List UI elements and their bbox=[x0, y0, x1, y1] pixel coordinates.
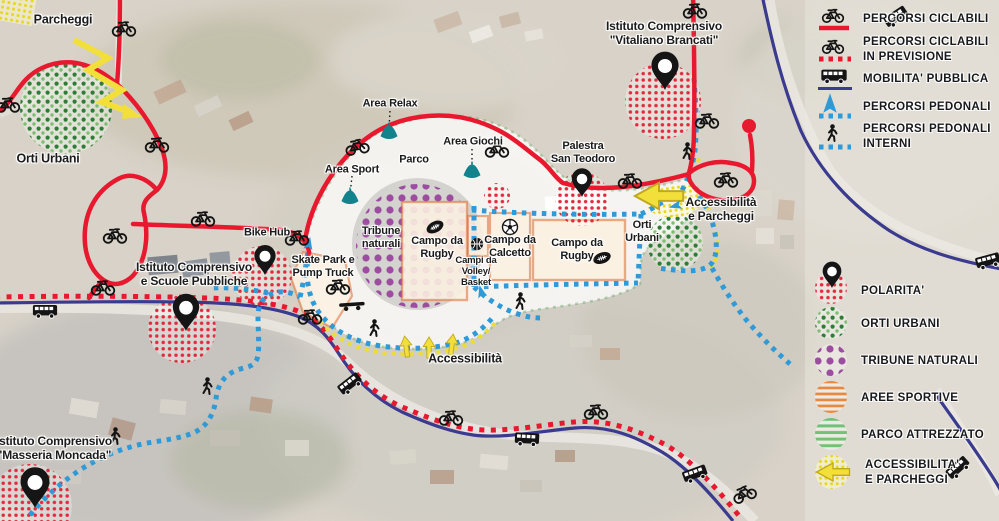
label-area-giochi: Area Giochi bbox=[443, 136, 503, 149]
orti-legend-icon bbox=[812, 306, 852, 342]
label-accessibilita: Accessibilità bbox=[428, 352, 502, 367]
label-parco: Parco bbox=[399, 154, 429, 167]
planned-cycle-legend-icon bbox=[816, 36, 854, 64]
legend-item-orti-urbani: ORTI URBANI bbox=[812, 306, 940, 342]
label-istituto-moncada: Istituto Comprensivo"Masseria Moncada" bbox=[0, 434, 112, 462]
legend-item-ciclabili-previsione: PERCORSI CICLABILIIN PREVISIONE bbox=[816, 35, 989, 65]
legend-item-aree-sportive: AREE SPORTIVE bbox=[812, 380, 958, 416]
legend-item-parco-attrezzato: PARCO ATTREZZATO bbox=[812, 417, 984, 453]
legend-item-accessibilita-parcheggi: ACCESSIBILITA'E PARCHEGGI bbox=[812, 453, 959, 493]
label-accessibilita-parcheggi: Accessibilitàe Parcheggi bbox=[686, 195, 757, 223]
label-bike-hub: Bike Hub bbox=[244, 227, 290, 240]
label-campi-volley-basket: Campi daVolley/Basket bbox=[455, 255, 496, 289]
legend-item-mobilita-pubblica: MOBILITA' PUBBLICA bbox=[816, 66, 988, 92]
label-area-relax: Area Relax bbox=[363, 98, 418, 111]
masterplan-map: Parcheggi Orti Urbani Area Relax Parco A… bbox=[0, 0, 999, 521]
basketball-icon bbox=[471, 238, 483, 250]
legend-item-pedonali-interni: PERCORSI PEDONALIINTERNI bbox=[816, 122, 991, 152]
label-campo-rugby-right: Campo daRugby bbox=[551, 237, 603, 263]
legend-item-percorsi-ciclabili: PERCORSI CICLABILI bbox=[816, 5, 989, 33]
label-orti-urbani-left: Orti Urbani bbox=[16, 152, 79, 167]
label-istituto-brancati: Istituto Comprensivo"Vitaliano Brancati" bbox=[606, 19, 722, 47]
label-campo-calcetto: Campo daCalcetto bbox=[484, 234, 536, 260]
park-legend-icon bbox=[812, 417, 852, 453]
accessibility-legend-icon bbox=[812, 453, 856, 493]
label-orti-urbani-right: OrtiUrbani bbox=[625, 219, 659, 245]
legend-item-tribune-naturali: TRIBUNE NATURALI bbox=[812, 343, 978, 379]
label-area-sport: Area Sport bbox=[325, 164, 379, 177]
pedestrian-internal-legend-icon bbox=[816, 122, 854, 152]
cycle-path bbox=[750, 135, 752, 171]
label-skate-park: Skate Park ePump Truck bbox=[291, 254, 354, 280]
label-istituto-scuole: Istituto Comprensivoe Scuole Pubbliche bbox=[136, 260, 252, 288]
polarity-legend-icon bbox=[812, 256, 852, 308]
legend-item-polarita: POLARITA' bbox=[812, 256, 924, 308]
tribune-legend-icon bbox=[812, 343, 852, 379]
cycle-path-legend-icon bbox=[816, 5, 854, 33]
label-parcheggi: Parcheggi bbox=[34, 13, 93, 28]
transit-legend-icon bbox=[816, 66, 854, 92]
terminus-dot bbox=[742, 119, 756, 133]
label-palestra-san-teodoro: PalestraSan Teodoro bbox=[551, 140, 615, 166]
sport-legend-icon bbox=[812, 380, 852, 416]
pedestrian-legend-icon bbox=[816, 93, 854, 121]
label-tribune-naturali: Tribunenaturali bbox=[362, 225, 400, 251]
legend-item-percorsi-pedonali: PERCORSI PEDONALI bbox=[816, 93, 991, 121]
soccer-ball-icon bbox=[503, 220, 518, 235]
